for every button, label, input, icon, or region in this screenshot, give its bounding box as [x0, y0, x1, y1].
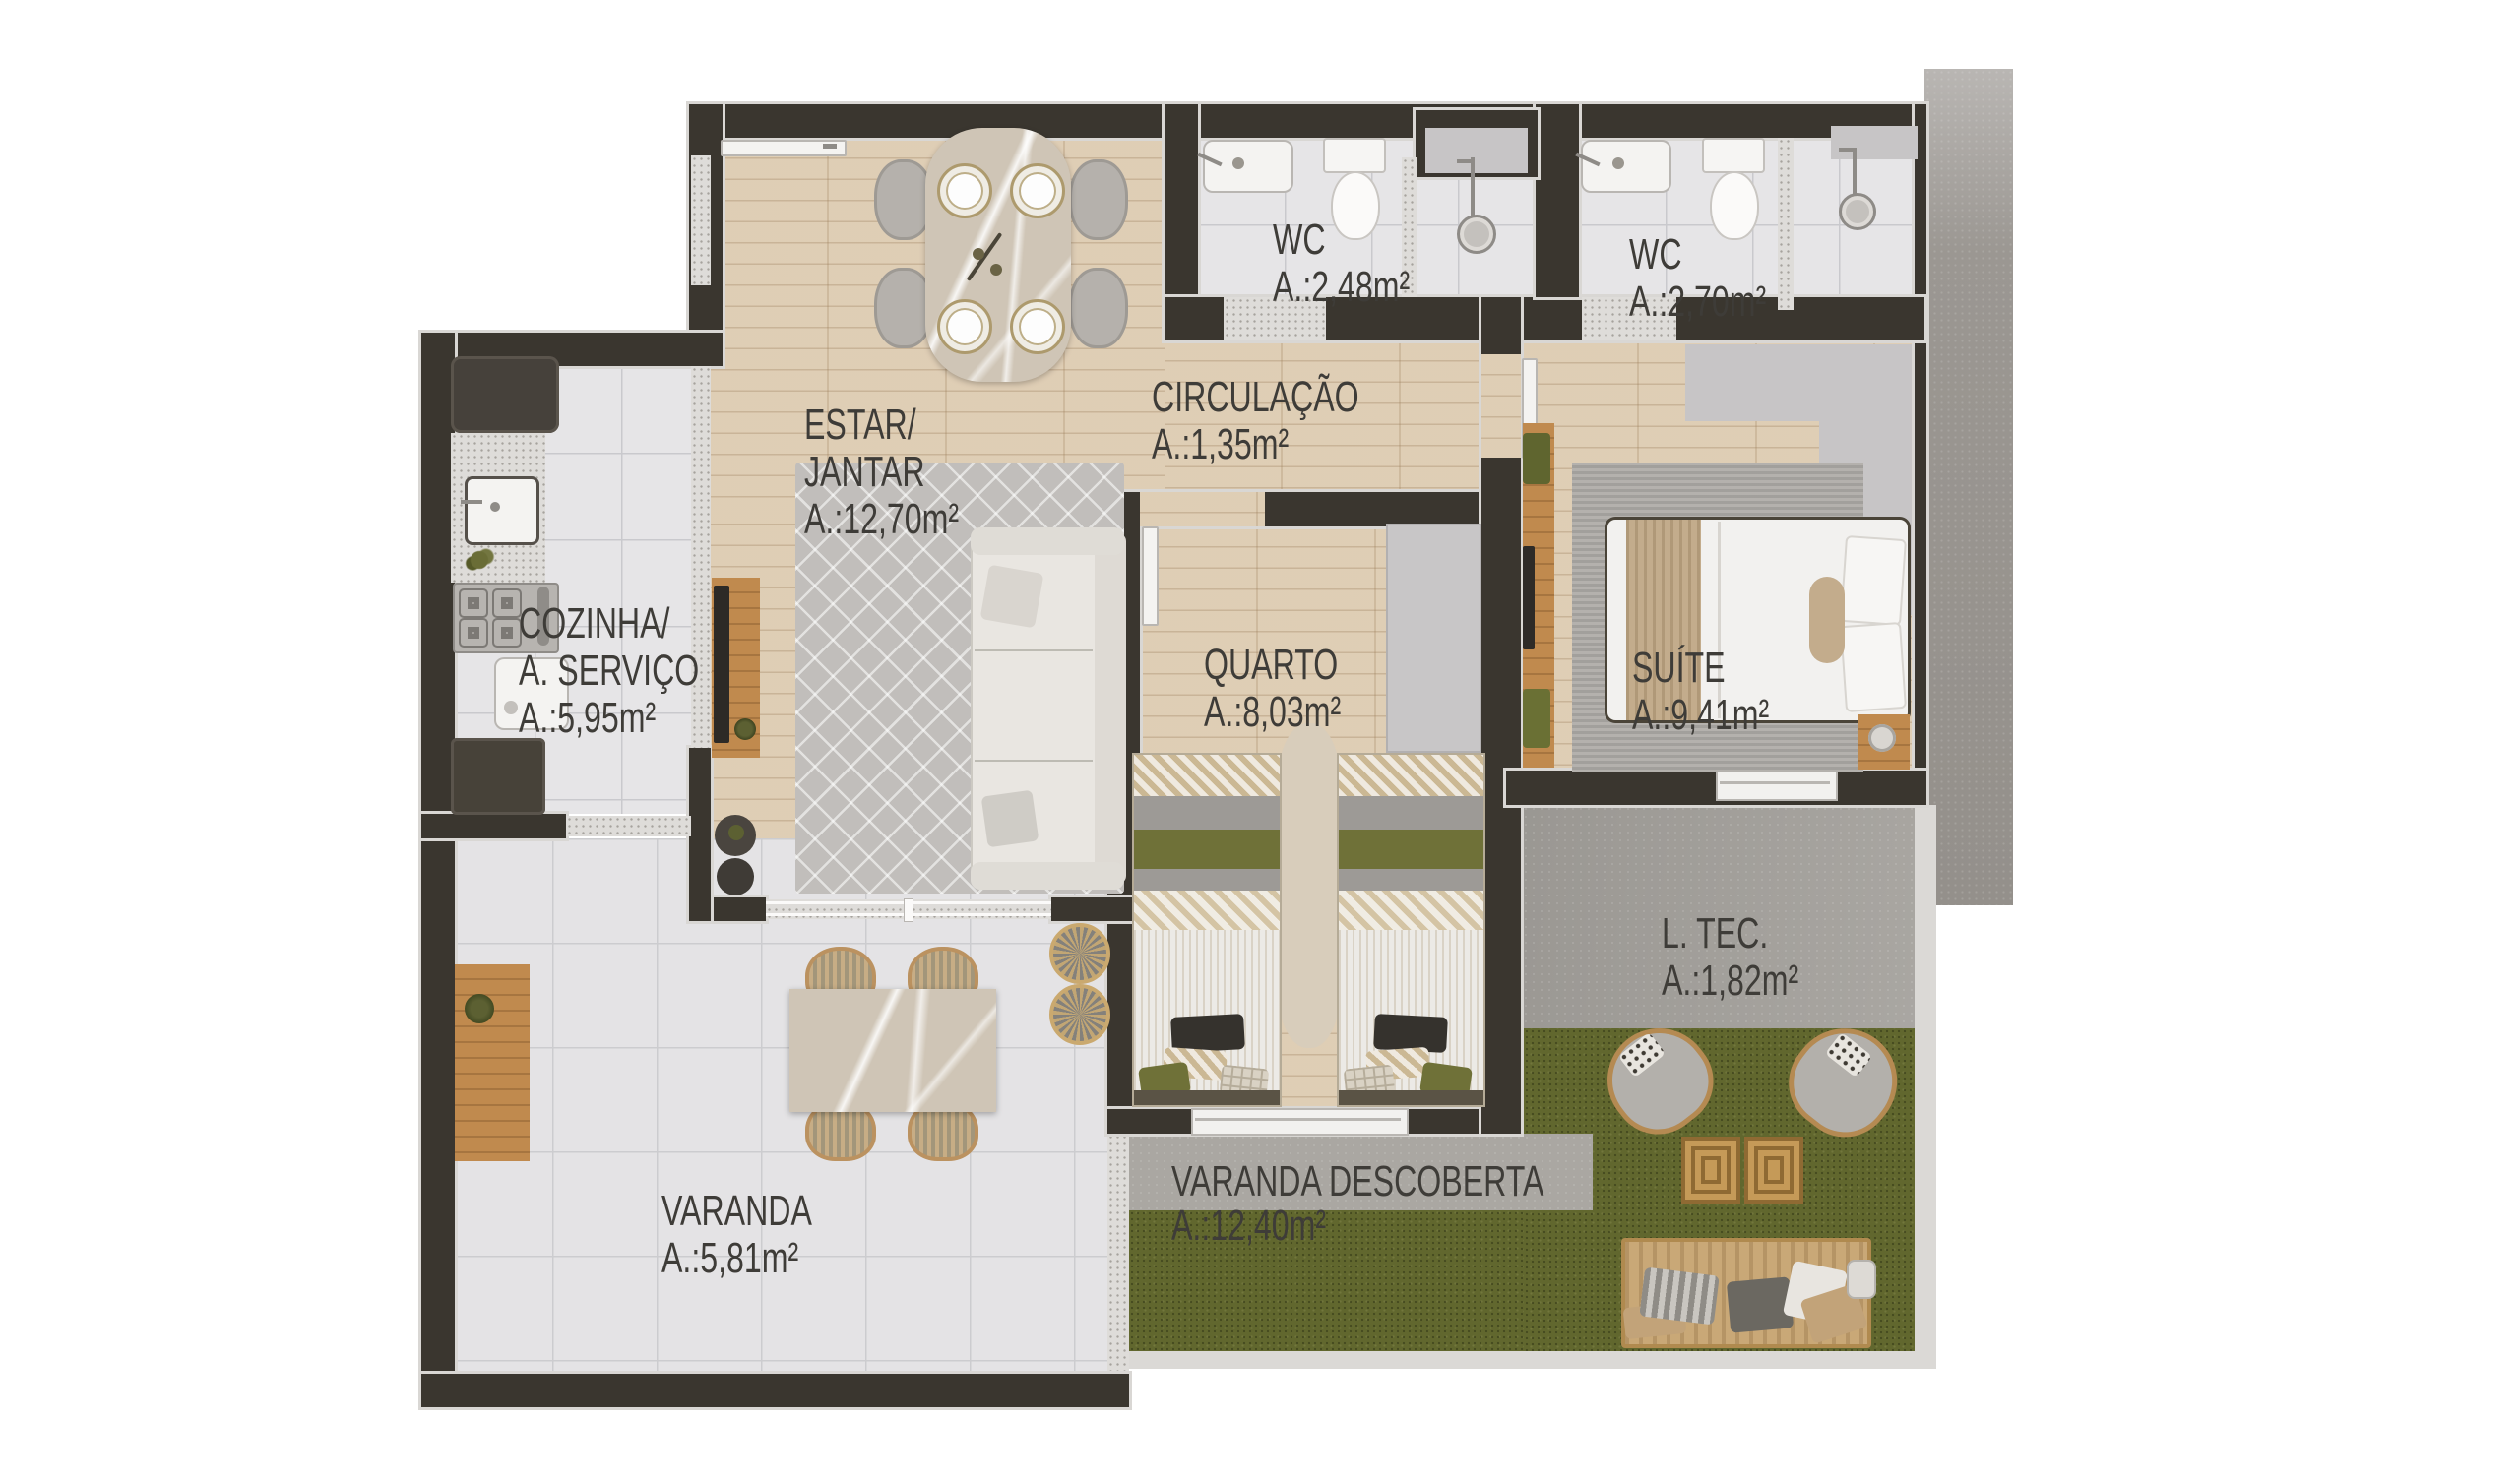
- kitchen-cabinet: [451, 738, 545, 815]
- wc1-shower-arm: [1471, 157, 1475, 218]
- kitchen-herbs-plant: [463, 543, 496, 577]
- wall-living-wc1: [1165, 104, 1198, 330]
- room-name: ESTAR/ JANTAR: [804, 401, 959, 496]
- balcony-grass-divider: [1107, 1134, 1129, 1374]
- bed1-blanket-gray-2: [1134, 869, 1280, 891]
- terrace-table-panel-2: [1744, 1137, 1803, 1204]
- bed2-throw: [1339, 755, 1483, 796]
- room-area: A.:2,48m²: [1273, 264, 1410, 311]
- label-wc1: WC A.:2,48m²: [1273, 216, 1410, 311]
- stove-burner-1: [459, 588, 488, 618]
- label-quarto: QUARTO A.:8,03m²: [1204, 642, 1341, 736]
- sofa-pillow-1: [980, 565, 1044, 629]
- bed1-throw: [1134, 755, 1280, 796]
- label-estar-jantar: ESTAR/ JANTAR A.:12,70m²: [804, 401, 959, 543]
- fridge: [451, 356, 559, 433]
- wc2-toilet-tank: [1702, 138, 1765, 173]
- wall-balcony-bottom: [421, 1374, 1129, 1407]
- bed2-runner: [1339, 891, 1483, 930]
- dining-chair-3: [874, 268, 933, 348]
- console-plant: [734, 718, 756, 740]
- slider-stile: [904, 898, 913, 922]
- wicker-pouf-2: [1049, 984, 1110, 1045]
- wc1-drain: [1232, 157, 1244, 169]
- wc2-shower-head: [1839, 193, 1876, 230]
- wall-right: [1915, 104, 1926, 805]
- wall-wc-divider: [1536, 104, 1579, 297]
- suite-window-mullion: [1720, 781, 1830, 784]
- sofa-armrest-top: [971, 527, 1124, 555]
- balcony-planter-plant: [465, 994, 494, 1023]
- terrace-bottom-rim: [1129, 1351, 1936, 1369]
- suite-window: [1716, 770, 1838, 801]
- patio-table: [789, 989, 996, 1112]
- dining-plate-1: [937, 163, 992, 218]
- bedroom-wardrobe: [1386, 524, 1481, 753]
- bed2-blanket-olive: [1339, 830, 1483, 869]
- room-area: A.:5,81m²: [661, 1235, 812, 1282]
- wc1-shower-niche: [1425, 128, 1528, 173]
- bedroom-rug: [1278, 723, 1341, 1048]
- dining-plate-3: [937, 299, 992, 354]
- wc2-shower-niche: [1831, 126, 1918, 159]
- wc2-drain: [1612, 157, 1624, 169]
- label-suite: SUÍTE A.:9,41m²: [1632, 645, 1769, 739]
- daybed-pillow-striped: [1639, 1267, 1720, 1326]
- wall-left: [421, 333, 455, 1407]
- suite-lamp: [1868, 724, 1896, 752]
- bed2-blanket-gray-2: [1339, 869, 1483, 891]
- wall-kitchen-bottom: [421, 814, 566, 838]
- sofa-armrest-bottom: [971, 862, 1124, 890]
- suite-tv: [1523, 546, 1535, 649]
- room-area: A.:1,82m²: [1662, 957, 1798, 1005]
- kitchen-faucet-head: [490, 502, 500, 512]
- suite-wardrobe-plant-bottom: [1523, 689, 1550, 748]
- dining-chair-1: [874, 159, 933, 240]
- bed2-headboard: [1339, 1090, 1483, 1105]
- room-area: A.:9,41m²: [1632, 692, 1769, 739]
- label-varanda: VARANDA A.:5,81m²: [661, 1188, 812, 1282]
- suite-door-opening: [1481, 354, 1521, 458]
- floor-plan-page: { "plan_type": "apartment-floor-plan", "…: [0, 0, 2520, 1482]
- room-name: WC: [1273, 216, 1410, 264]
- terrace-table-panel-1: [1681, 1137, 1740, 1204]
- dining-chair-4: [1069, 268, 1128, 348]
- bed2-black-pillow: [1373, 1014, 1448, 1053]
- wc1-shower-valve: [1457, 159, 1475, 163]
- wc1-toilet-tank: [1323, 138, 1386, 173]
- sofa-seam-2: [975, 760, 1093, 762]
- suite-closet-zone: [1685, 344, 1915, 421]
- room-name: SUÍTE: [1632, 645, 1769, 692]
- stove-burner-3: [459, 618, 488, 648]
- room-area: A.:5,95m²: [519, 695, 699, 742]
- bed1-blanket-olive: [1134, 830, 1280, 869]
- wc1-vanity: [1203, 140, 1293, 193]
- centerpiece-leaf-1: [973, 248, 984, 260]
- stove-burner-4: [492, 618, 522, 648]
- bed1-blanket-gray-1: [1134, 796, 1280, 830]
- laundry-faucet: [504, 701, 518, 714]
- bedroom-window: [1191, 1108, 1409, 1136]
- bedroom-door-leaf: [1142, 526, 1159, 626]
- suite-wardrobe-plant-top: [1523, 433, 1550, 484]
- bed1-runner: [1134, 891, 1280, 930]
- kitchen-sink: [465, 476, 539, 545]
- bedroom-window-mullion: [1195, 1118, 1401, 1121]
- wc2-shower-partition: [1778, 138, 1794, 310]
- terrace-right-rim: [1915, 805, 1936, 1368]
- entry-door-handle: [823, 144, 837, 149]
- label-wc2: WC A.:2,70m²: [1629, 231, 1766, 326]
- room-name: VARANDA DESCOBERTA: [1171, 1159, 1543, 1204]
- label-cozinha: COZINHA/ A. SERVIÇO A.:5,95m²: [519, 600, 699, 742]
- room-name: CIRCULAÇÃO: [1152, 374, 1359, 421]
- wc2-shower-arm: [1853, 148, 1857, 199]
- dining-plate-4: [1010, 299, 1065, 354]
- room-area: A.:12,40m²: [1171, 1204, 1543, 1248]
- dining-chair-2: [1069, 159, 1128, 240]
- centerpiece-leaf-2: [990, 264, 1002, 276]
- bedroom-door-opening: [1140, 492, 1265, 526]
- label-varanda-descoberta: VARANDA DESCOBERTA A.:12,40m²: [1171, 1159, 1543, 1248]
- label-circulacao: CIRCULAÇÃO A.:1,35m²: [1152, 374, 1359, 468]
- side-table-2: [717, 858, 754, 895]
- bed1-black-pillow: [1170, 1014, 1245, 1053]
- stove-burner-2: [492, 588, 522, 618]
- wc2-vanity: [1581, 140, 1671, 193]
- room-name: WC: [1629, 231, 1766, 278]
- tv: [714, 586, 729, 743]
- sofa-back: [1095, 533, 1126, 884]
- suite-pillow-2: [1840, 622, 1907, 712]
- room-name: COZINHA/ A. SERVIÇO: [519, 600, 699, 695]
- daybed-bolster: [1847, 1260, 1876, 1299]
- suite-lumbar-cushion: [1809, 577, 1845, 663]
- balcony-planter: [455, 964, 530, 1161]
- wicker-pouf-1: [1049, 923, 1110, 984]
- kitchen-faucet: [461, 500, 482, 504]
- suite-pillow-1: [1840, 535, 1907, 626]
- kitchen-balcony-threshold: [566, 816, 691, 836]
- room-area: A.:12,70m²: [804, 496, 959, 543]
- side-table-plant: [728, 825, 744, 840]
- exterior-concrete-texture: [1924, 69, 2013, 905]
- room-area: A.:1,35m²: [1152, 421, 1359, 468]
- sofa-pillow-2: [981, 790, 1039, 848]
- entry-wall-niche: [691, 155, 711, 285]
- label-ltec: L. TEC. A.:1,82m²: [1662, 910, 1798, 1005]
- wc1-shower-head: [1457, 215, 1496, 254]
- bed1-headboard: [1134, 1090, 1280, 1105]
- sofa-seam-1: [975, 649, 1093, 651]
- wall-kitchen-living-chunk: [689, 748, 711, 921]
- room-area: A.:2,70m²: [1629, 278, 1766, 326]
- room-name: QUARTO: [1204, 642, 1341, 689]
- dining-plate-2: [1010, 163, 1065, 218]
- wall-top: [689, 104, 1924, 138]
- wc2-shower-valve: [1839, 148, 1857, 152]
- room-area: A.:8,03m²: [1204, 689, 1341, 736]
- bed2-blanket-gray-1: [1339, 796, 1483, 830]
- room-name: VARANDA: [661, 1188, 812, 1235]
- wc2-toilet-bowl: [1710, 171, 1759, 240]
- room-name: L. TEC.: [1662, 910, 1798, 957]
